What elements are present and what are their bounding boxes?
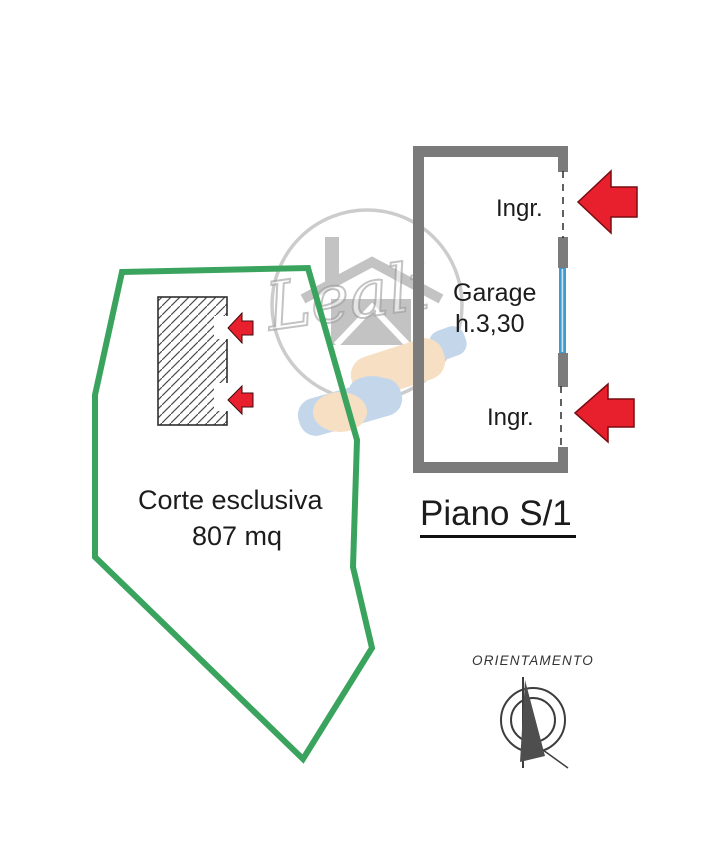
garage-entrance-bottom-label: Ingr.	[487, 404, 534, 432]
garage-name-label: Garage	[453, 279, 536, 308]
floor-plan-page: Leali	[0, 0, 705, 843]
garage-height-label: h.3,30	[455, 310, 525, 339]
courtyard-area-label: 807 mq	[192, 521, 282, 552]
floor-title: Piano S/1	[420, 494, 576, 538]
compass-icon	[501, 677, 568, 768]
small-entrance-arrow-bottom-icon	[228, 386, 253, 414]
footprint-opening-top	[214, 316, 229, 339]
garage-window	[559, 268, 566, 353]
garage-entrance-top-label: Ingr.	[496, 195, 543, 223]
orientation-title: ORIENTAMENTO	[472, 653, 594, 668]
building-footprint	[158, 297, 229, 425]
footprint-opening-bottom	[214, 383, 229, 411]
plan-drawing	[0, 0, 705, 843]
entrance-arrow-top-icon	[578, 171, 637, 233]
small-entrance-arrow-top-icon	[228, 313, 253, 343]
entrance-arrow-bottom-icon	[575, 384, 634, 442]
courtyard-label: Corte esclusiva	[138, 485, 323, 516]
